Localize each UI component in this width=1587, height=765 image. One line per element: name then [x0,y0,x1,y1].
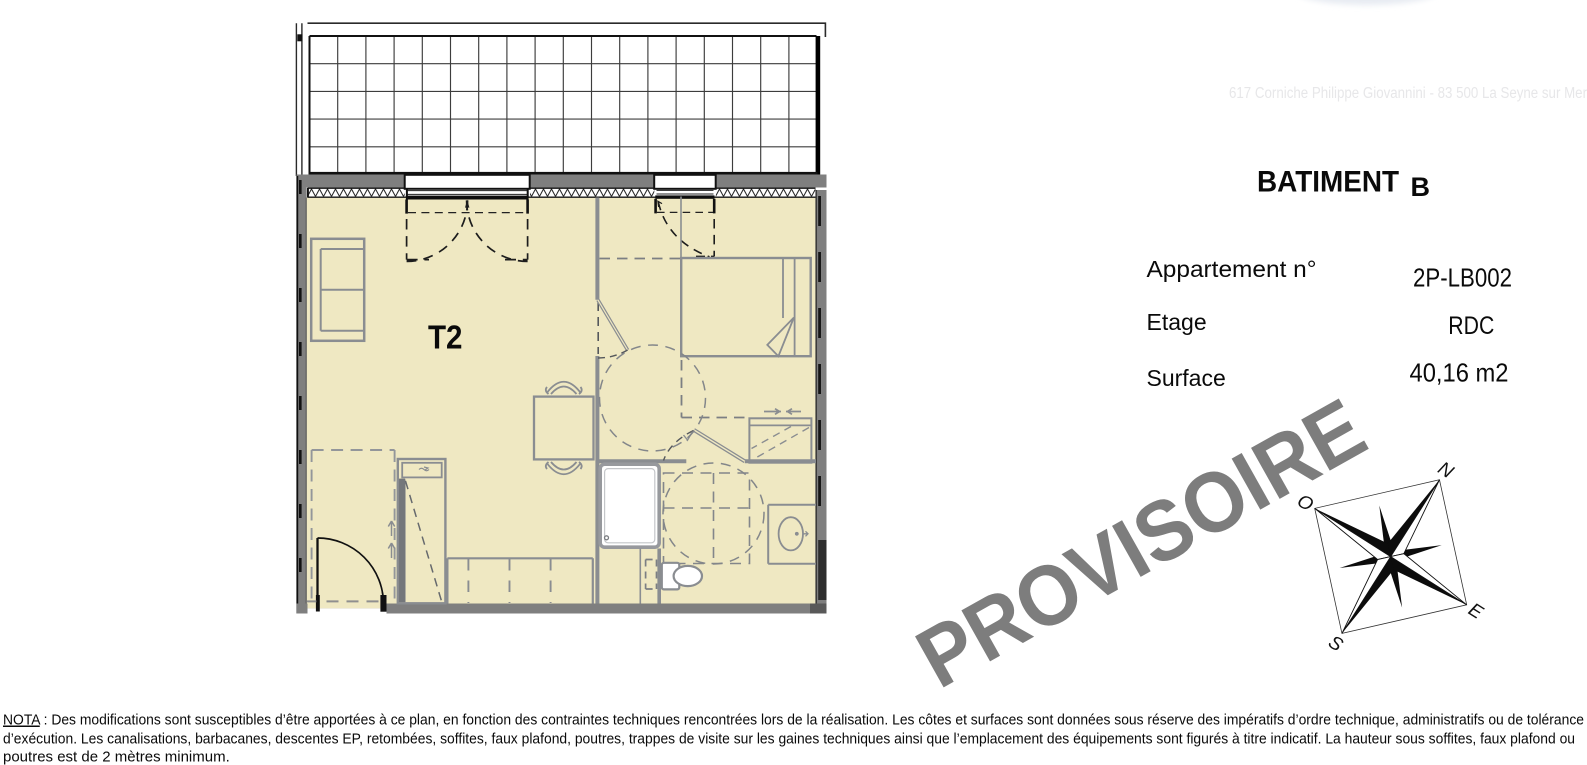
svg-text:poutres est de 2 mètres minimu: poutres est de 2 mètres minimum. [3,749,230,765]
svg-text:B: B [1411,172,1431,202]
svg-text:2P-LB002: 2P-LB002 [1413,263,1512,293]
svg-text:Surface: Surface [1147,365,1226,391]
svg-text:617 Corniche Philippe Giovanni: 617 Corniche Philippe Giovannini - 83 50… [1229,85,1587,102]
svg-text:T2: T2 [428,319,463,356]
svg-text:Etage: Etage [1147,309,1207,335]
svg-text:d’exécution. Les canalisations: d’exécution. Les canalisations, barbacan… [3,731,1575,748]
svg-text:RDC: RDC [1448,312,1494,340]
svg-text:Appartement n°: Appartement n° [1147,256,1317,282]
svg-text:BATIMENT: BATIMENT [1257,166,1399,199]
svg-text:NOTA : Des modifications sont: NOTA : Des modifications sont susceptibl… [3,712,1584,729]
svg-text:40,16 m2: 40,16 m2 [1410,358,1509,388]
